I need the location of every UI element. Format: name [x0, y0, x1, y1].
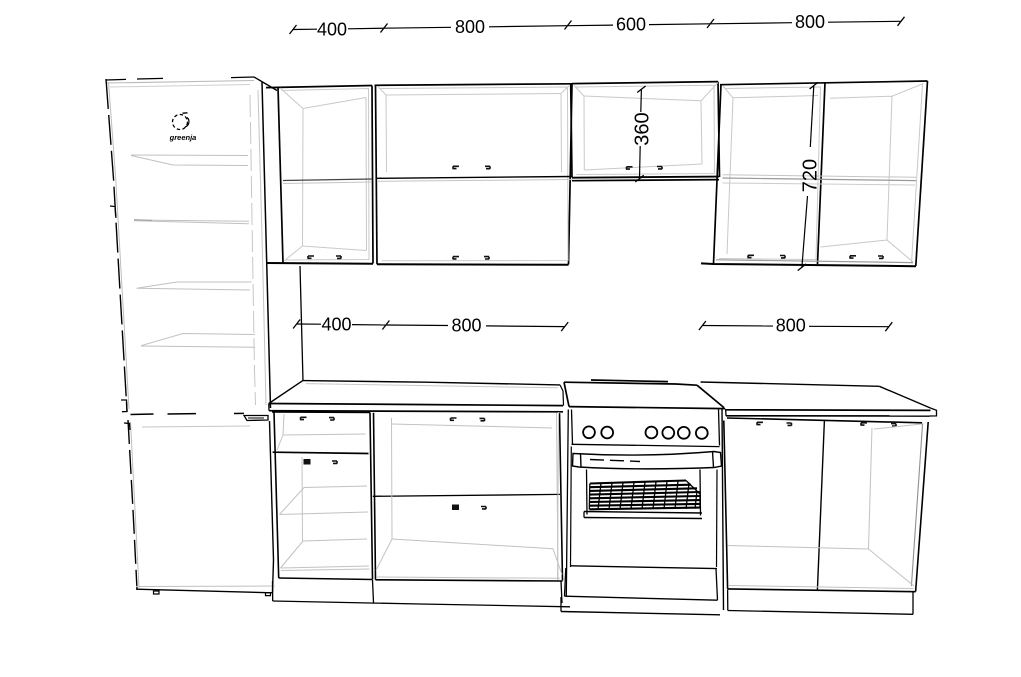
- svg-text:800: 800: [451, 316, 481, 336]
- svg-text:600: 600: [616, 15, 646, 35]
- svg-text:800: 800: [455, 17, 485, 37]
- svg-text:360: 360: [632, 112, 654, 145]
- svg-text:800: 800: [776, 316, 806, 336]
- svg-text:400: 400: [321, 315, 351, 335]
- svg-text:720: 720: [800, 159, 822, 192]
- svg-text:greenja: greenja: [169, 133, 197, 142]
- svg-text:800: 800: [795, 12, 825, 32]
- svg-text:400: 400: [317, 20, 347, 40]
